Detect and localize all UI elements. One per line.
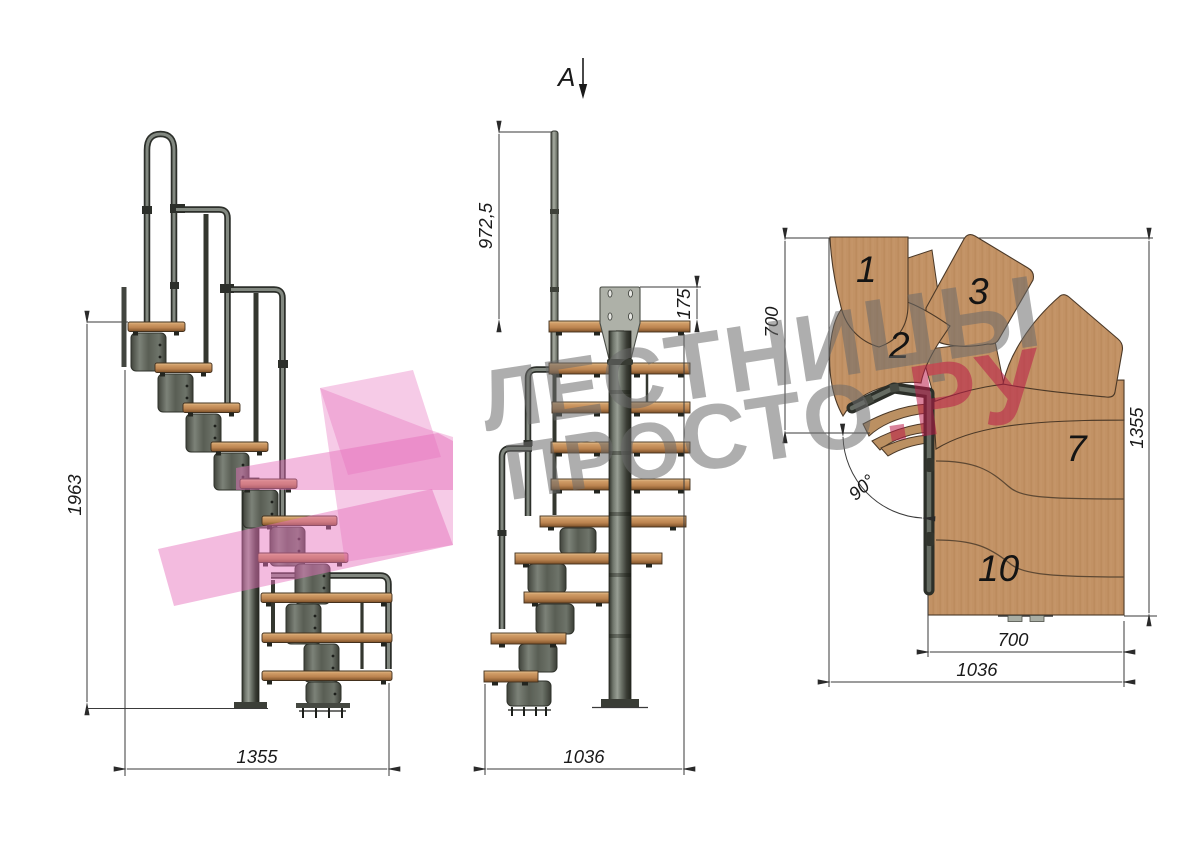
- svg-text:1355: 1355: [236, 746, 278, 767]
- svg-text:10: 10: [978, 548, 1020, 589]
- svg-text:1036: 1036: [956, 659, 998, 680]
- svg-text:1963: 1963: [64, 474, 85, 516]
- svg-text:A: A: [556, 62, 575, 92]
- svg-text:972,5: 972,5: [475, 202, 496, 249]
- svg-text:700: 700: [998, 629, 1030, 650]
- svg-text:7: 7: [1066, 428, 1088, 469]
- svg-text:1355: 1355: [1126, 407, 1147, 449]
- svg-text:1036: 1036: [563, 746, 605, 767]
